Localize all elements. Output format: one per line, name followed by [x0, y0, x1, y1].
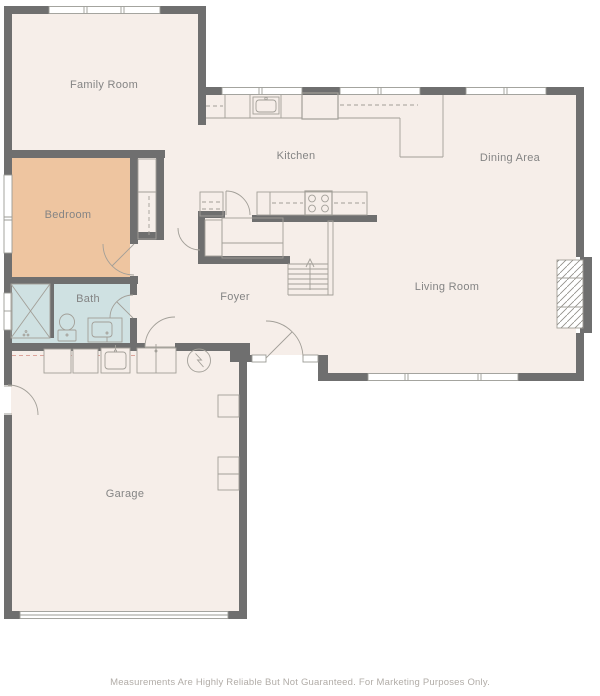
room-label-bedroom: Bedroom [45, 209, 92, 221]
room-label-dining-area: Dining Area [480, 152, 540, 164]
room-label-bath: Bath [76, 293, 100, 305]
living-room-window [368, 374, 518, 381]
floor-areas [11, 14, 576, 611]
family-room-window [49, 7, 160, 14]
bedroom-window [4, 175, 12, 253]
disclaimer-text: Measurements Are Highly Reliable But Not… [0, 677, 600, 688]
utility-sink [137, 344, 176, 373]
garage-door [20, 612, 228, 619]
laundry-sink [101, 345, 130, 373]
kitchen-window [222, 88, 302, 95]
entry-sidelight-left [252, 355, 266, 362]
dryer [73, 349, 98, 373]
room-label-kitchen: Kitchen [277, 150, 316, 162]
floorplan-drawing [0, 0, 600, 696]
room-label-garage: Garage [106, 488, 145, 500]
kitchen-window-2 [340, 88, 420, 95]
dining-window [466, 88, 546, 95]
floorplan-page: Family Room Kitchen Dining Area Bedroom … [0, 0, 600, 696]
room-label-foyer: Foyer [220, 291, 250, 303]
washer [44, 349, 71, 373]
entry-sidelight-right [303, 355, 318, 362]
room-label-living-room: Living Room [415, 281, 479, 293]
room-label-family-room: Family Room [70, 79, 138, 91]
fireplace-icon [557, 260, 583, 328]
